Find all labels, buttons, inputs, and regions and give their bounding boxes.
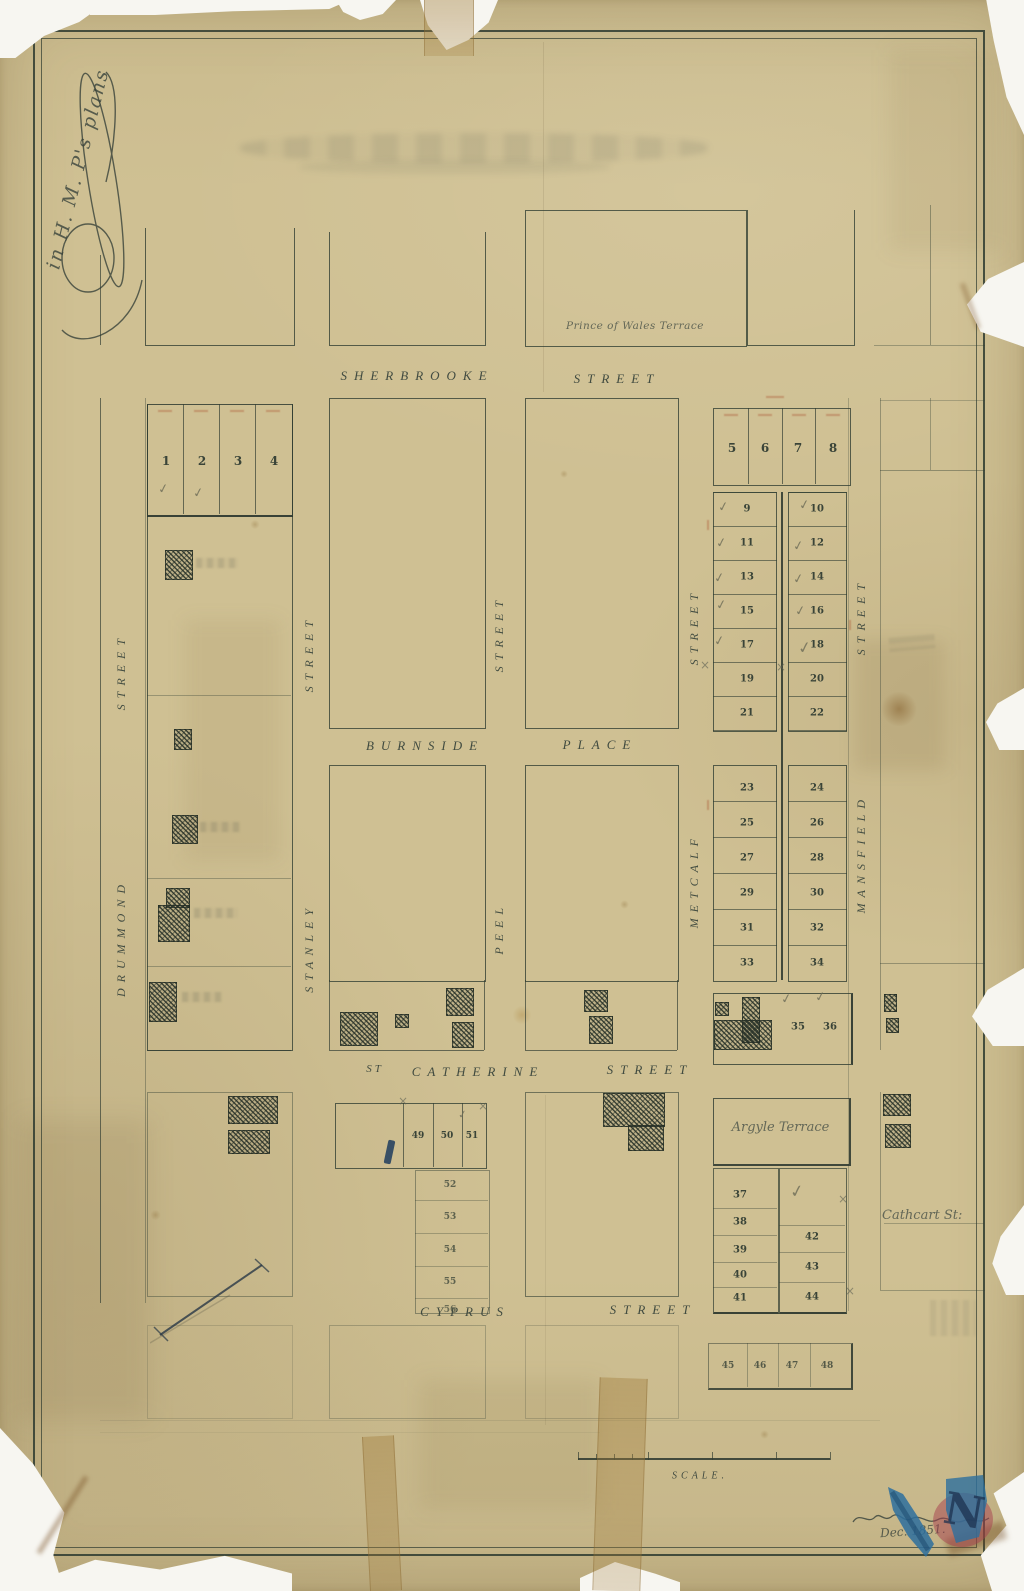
- checkmark-icon: ✓: [715, 597, 728, 614]
- hatched-building: [165, 550, 193, 580]
- hatched-building: [340, 1012, 378, 1046]
- map-line: [525, 1050, 677, 1051]
- street-label-peel: PEEL: [492, 902, 508, 955]
- lot-divider: [219, 404, 220, 514]
- lot-number: 46: [754, 1361, 767, 1371]
- checkmark-icon: ✓: [792, 538, 805, 555]
- scale-tick: [648, 1452, 649, 1460]
- lot-number: 19: [740, 674, 754, 685]
- hatched-building: [174, 729, 192, 750]
- lot-number: 16: [810, 606, 824, 617]
- lot-divider: [415, 1233, 488, 1234]
- lot-number: 54: [444, 1245, 457, 1255]
- lane-line: [781, 492, 783, 980]
- red-dimension-mark: [826, 414, 840, 416]
- lot-divider: [183, 404, 184, 514]
- street-label-burnside-place: PLACE: [563, 737, 638, 753]
- hatched-building: [886, 1018, 899, 1033]
- faint-line: [100, 1420, 880, 1421]
- lot-number: 36: [823, 1022, 837, 1033]
- checkmark-icon: ✓: [713, 570, 726, 587]
- red-dimension-mark: [266, 410, 280, 412]
- lot-divider: [782, 408, 783, 484]
- lot-number: 41: [733, 1293, 747, 1304]
- lot-number: 38: [733, 1217, 747, 1228]
- checkmark-icon: ✓: [780, 991, 793, 1008]
- terrace-label: Prince of Wales Terrace: [520, 320, 750, 332]
- lot-divider: [713, 1287, 777, 1288]
- block-outline: [329, 232, 486, 346]
- lot-number: 31: [740, 923, 754, 934]
- scale-tick: [578, 1452, 579, 1460]
- lot-number: 37: [733, 1190, 747, 1201]
- lot-divider: [815, 408, 816, 484]
- red-dimension-mark: [230, 410, 244, 412]
- lot-number: 44: [805, 1292, 819, 1303]
- lot-number: 35: [791, 1022, 805, 1033]
- street-label-stanley: STANLEY: [302, 903, 318, 993]
- hatched-building: [452, 1022, 474, 1048]
- street-label-st-catherine: ST: [366, 1063, 384, 1075]
- lot-number: 24: [810, 783, 824, 794]
- lot-number: 22: [810, 708, 824, 719]
- lot-divider: [778, 1343, 779, 1387]
- street-label-burnside: BURNSIDE: [366, 738, 484, 754]
- checkmark-icon: ✓: [794, 603, 807, 620]
- map-line: [329, 1050, 484, 1051]
- lot-number: 11: [740, 538, 754, 549]
- lot-divider: [779, 1225, 845, 1226]
- hatched-building: [228, 1096, 278, 1124]
- parcel-line: [147, 878, 291, 879]
- lot-number: 39: [733, 1245, 747, 1256]
- map-line: [930, 398, 931, 470]
- lot-divider: [415, 1266, 488, 1267]
- red-dimension-mark: [707, 800, 709, 810]
- lot-number: 17: [740, 640, 754, 651]
- lot-number: 18: [810, 640, 824, 651]
- terrace-label: Argyle Terrace: [713, 1120, 848, 1135]
- hatched-building: [603, 1093, 665, 1127]
- checkmark-icon: ✓: [717, 499, 730, 516]
- x-mark: ×: [845, 1284, 855, 1298]
- lot-column-23-33: [713, 765, 777, 982]
- lot-number: 42: [805, 1232, 819, 1243]
- x-mark: ×: [700, 658, 710, 672]
- scale-label: SCALE.: [672, 1471, 728, 1482]
- lot-number: 5: [728, 441, 736, 455]
- block-outline: [525, 765, 679, 982]
- lot-number: 12: [810, 538, 824, 549]
- red-dimension-mark: [766, 396, 784, 398]
- street-label-metcalf: METCALF: [687, 833, 703, 928]
- lot-number: 23: [740, 783, 754, 794]
- lot-number: 51: [466, 1131, 479, 1141]
- parcel-line: [147, 966, 291, 967]
- map-line: [884, 1223, 984, 1224]
- block-outline: [329, 765, 486, 982]
- street-label-sherbrooke: SHERBROOKE: [340, 368, 493, 384]
- x-mark: ×: [478, 1099, 488, 1113]
- lot-number: 33: [740, 958, 754, 969]
- x-mark: ×: [776, 660, 786, 674]
- cathcart-label: Cathcart St:: [882, 1208, 962, 1223]
- street-line-mansfield-west: [848, 398, 849, 1311]
- lot-divider: [810, 1343, 811, 1387]
- lot-number: 52: [444, 1180, 457, 1190]
- street-label-stanley-street: STREET: [302, 615, 318, 692]
- lot-number: 10: [810, 504, 824, 515]
- tape-strip: [424, 0, 474, 56]
- lot-number: 34: [810, 958, 824, 969]
- red-dimension-mark: [707, 520, 709, 530]
- map-line: [329, 980, 330, 1050]
- red-dimension-mark: [792, 414, 806, 416]
- parcel-line: [147, 695, 291, 696]
- street-label-cyprus: CYPRUS: [420, 1304, 510, 1320]
- pencil-note-smudge: [194, 908, 238, 918]
- checkmark-icon: ✓: [715, 535, 728, 552]
- block-outline: [329, 398, 486, 729]
- hatched-building: [589, 1016, 613, 1044]
- map-line: [880, 400, 985, 401]
- ink-stamp-overlay: [840, 1460, 1024, 1591]
- lot-number: 2: [198, 454, 206, 468]
- hatched-building: [714, 1020, 772, 1050]
- lot-number: 28: [810, 853, 824, 864]
- lot-divider: [713, 1208, 777, 1209]
- lot-column-52-56: [415, 1170, 490, 1314]
- map-line: [880, 1290, 985, 1291]
- lot-divider: [779, 1252, 845, 1253]
- hatched-building: [446, 988, 474, 1016]
- checkmark-icon: ✓: [792, 571, 805, 588]
- pencil-note-smudge: [930, 1300, 976, 1336]
- lot-number: 55: [444, 1277, 457, 1287]
- lot-divider: [415, 1298, 488, 1299]
- street-label-mansfield: MANSFIELD: [854, 794, 870, 913]
- hatched-building: [883, 1094, 911, 1116]
- lot-number: 48: [821, 1361, 834, 1371]
- red-dimension-mark: [724, 414, 738, 416]
- lot-number: 27: [740, 853, 754, 864]
- checkmark-icon: ✓: [457, 1107, 468, 1121]
- map-line: [100, 255, 101, 345]
- street-label-sherbrooke-street: STREET: [574, 371, 661, 387]
- lot-number: 53: [444, 1212, 457, 1222]
- lot-number: 4: [270, 454, 278, 468]
- lot-number: 6: [761, 441, 769, 455]
- block-outline: [525, 398, 679, 729]
- lot-number: 21: [740, 708, 754, 719]
- lot-divider: [748, 408, 749, 484]
- lot-divider: [415, 1200, 488, 1201]
- checkmark-icon: ✓: [814, 989, 827, 1006]
- plan-sheet: in H. M. P's plans Prince of Wales Terra…: [0, 0, 1024, 1591]
- faint-line: [100, 1432, 600, 1433]
- lot-number: 13: [740, 572, 754, 583]
- street-label-st-catherine: CATHERINE: [412, 1064, 545, 1080]
- block-outline: [145, 228, 295, 346]
- block-outline: [329, 1325, 486, 1419]
- lot-number: 25: [740, 818, 754, 829]
- street-label-cyprus-street: STREET: [610, 1302, 697, 1318]
- red-dimension-mark: [758, 414, 772, 416]
- red-dimension-mark: [849, 620, 851, 630]
- map-line: [677, 980, 678, 1050]
- map-line: [930, 205, 931, 345]
- street-line-mansfield-east: [880, 398, 881, 1050]
- scale-tick: [776, 1452, 777, 1460]
- lot-column-24-34: [788, 765, 847, 982]
- hatched-building: [628, 1125, 664, 1151]
- lot-number: 8: [829, 441, 837, 455]
- x-mark: ×: [398, 1094, 408, 1108]
- checkmark-icon: ✓: [157, 481, 170, 498]
- checkmark-icon: ✓: [798, 497, 811, 514]
- lot-divider: [255, 404, 256, 514]
- street-label-mansfield-street: STREET: [854, 578, 870, 655]
- lot-number: 3: [234, 454, 242, 468]
- lot-number: 1: [162, 454, 170, 468]
- pencil-note-smudge: [200, 822, 240, 832]
- lot-divider: [403, 1103, 404, 1167]
- scale-tick: [712, 1452, 713, 1460]
- lot-number: 14: [810, 572, 824, 583]
- block-outline: [747, 210, 855, 346]
- hatched-building: [884, 994, 897, 1012]
- torn-edge: [336, 0, 396, 20]
- lot-number: 26: [810, 818, 824, 829]
- lot-number: 50: [441, 1131, 454, 1141]
- map-line: [525, 980, 526, 1050]
- lot-divider: [713, 1235, 777, 1236]
- hatched-building: [395, 1014, 409, 1028]
- hatched-building: [228, 1130, 270, 1154]
- map-line: [147, 1050, 291, 1051]
- lot-number: 45: [722, 1361, 735, 1371]
- lot-number: 7: [794, 441, 802, 455]
- diagonal-survey-line: [150, 1255, 280, 1345]
- street-label-st-catherine-street: STREET: [607, 1062, 694, 1078]
- lot-divider: [713, 1262, 777, 1263]
- street-label-peel-street: STREET: [492, 595, 508, 672]
- lot-number: 40: [733, 1270, 747, 1281]
- street-line-drummond-west: [100, 398, 101, 1303]
- hatched-building: [158, 905, 190, 942]
- pencil-note-smudge: [182, 992, 222, 1002]
- lot-number: 30: [810, 888, 824, 899]
- map-line: [874, 345, 985, 346]
- lot-number: 43: [805, 1262, 819, 1273]
- hatched-building: [149, 982, 177, 1022]
- checkmark-icon: ✓: [192, 485, 205, 502]
- torn-edge: [90, 0, 350, 15]
- red-dimension-mark: [194, 410, 208, 412]
- lot-number: 29: [740, 888, 754, 899]
- pencil-note-smudge: [196, 558, 238, 568]
- lot-number: 9: [744, 504, 751, 515]
- street-line-mansfield-east: [880, 1092, 881, 1290]
- scale-tick: [830, 1452, 831, 1460]
- lot-divider: [779, 1282, 845, 1283]
- checkmark-icon: ✓: [713, 633, 726, 650]
- street-label-metcalf-street: STREET: [687, 588, 703, 665]
- street-label-drummond-street: STREET: [114, 633, 130, 710]
- lot-number: 15: [740, 606, 754, 617]
- torn-edge: [988, 1205, 1024, 1295]
- lot-number: 20: [810, 674, 824, 685]
- hatched-building: [885, 1124, 911, 1148]
- street-line-drummond-east: [145, 398, 146, 1303]
- lot-divider: [747, 1343, 748, 1387]
- lot-number: 32: [810, 923, 824, 934]
- hatched-building: [172, 815, 198, 844]
- torn-edge: [52, 1552, 292, 1591]
- map-line: [484, 980, 485, 1050]
- lot-number: 47: [786, 1361, 799, 1371]
- hatched-building: [715, 1002, 729, 1016]
- lot-divider: [433, 1103, 434, 1167]
- torn-edge: [986, 688, 1024, 750]
- map-line: [880, 470, 985, 471]
- tape-strip: [592, 1377, 647, 1591]
- street-label-drummond: DRUMMOND: [114, 879, 130, 997]
- lot-number: 49: [412, 1131, 425, 1141]
- hatched-building: [584, 990, 608, 1012]
- red-dimension-mark: [158, 410, 172, 412]
- x-mark: ×: [838, 1192, 848, 1206]
- map-line: [880, 963, 985, 964]
